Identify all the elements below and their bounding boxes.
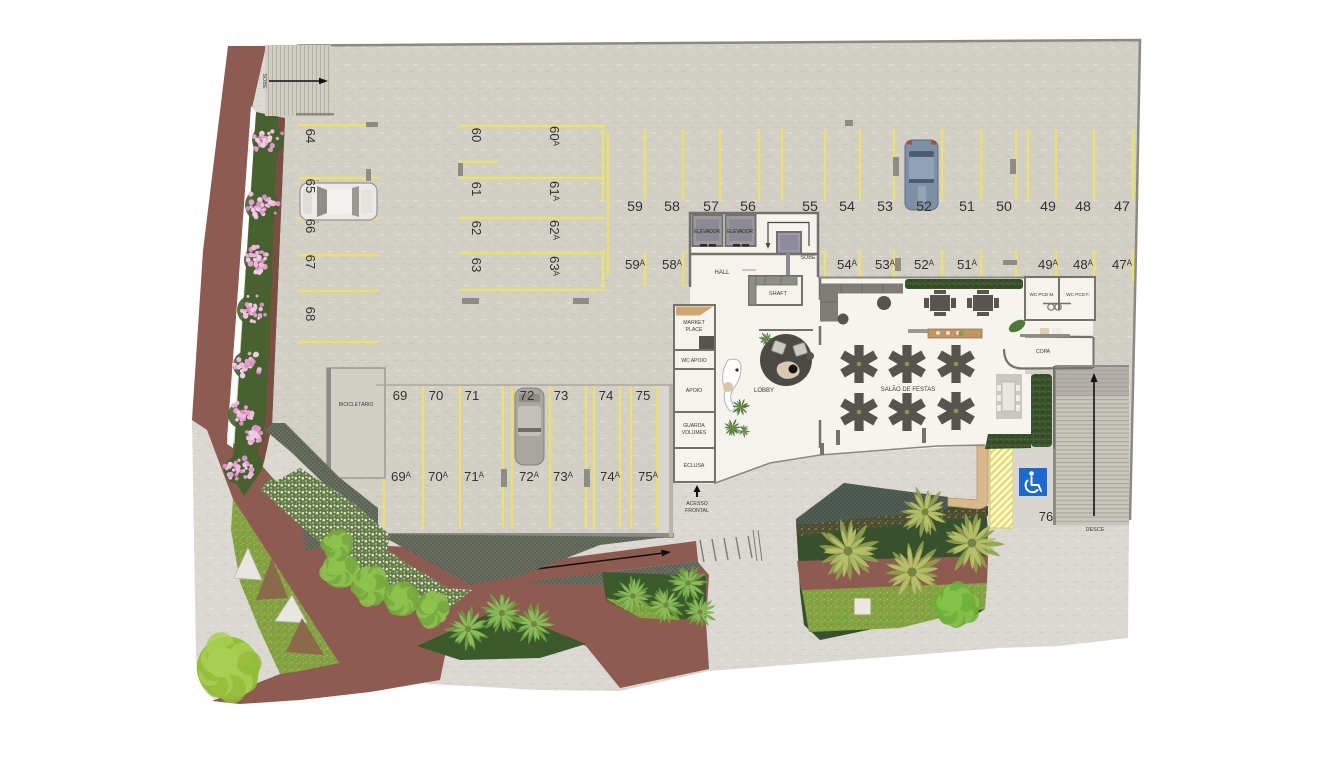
svg-text:GUARDA: GUARDA	[683, 423, 705, 429]
svg-text:56: 56	[740, 199, 756, 215]
svg-text:61: 61	[469, 182, 484, 197]
svg-text:67: 67	[303, 255, 318, 270]
svg-text:MARKET: MARKET	[683, 320, 705, 326]
svg-text:WC APOIO: WC APOIO	[681, 358, 706, 364]
svg-text:WC PCD F.: WC PCD F.	[1066, 292, 1089, 297]
svg-text:75: 75	[636, 388, 651, 403]
svg-text:51: 51	[959, 199, 975, 215]
svg-text:DESCE: DESCE	[1086, 527, 1105, 533]
svg-text:HALL: HALL	[714, 270, 730, 276]
svg-text:66: 66	[303, 219, 318, 234]
svg-text:SOBE: SOBE	[261, 73, 267, 89]
svg-text:49: 49	[1040, 199, 1056, 215]
svg-text:SHAFT: SHAFT	[769, 291, 788, 297]
svg-text:73: 73	[554, 388, 569, 403]
svg-text:ACESSO: ACESSO	[686, 501, 708, 507]
svg-text:76: 76	[1039, 509, 1053, 524]
svg-text:47: 47	[1114, 199, 1130, 215]
svg-text:APOIO: APOIO	[686, 388, 702, 394]
svg-text:SOBE: SOBE	[800, 255, 816, 261]
svg-text:FRONTAL: FRONTAL	[685, 508, 709, 514]
svg-text:59: 59	[627, 199, 643, 215]
svg-text:VOLUMES: VOLUMES	[682, 430, 707, 436]
svg-text:48: 48	[1075, 199, 1091, 215]
svg-text:70: 70	[429, 388, 444, 403]
svg-text:BICICLETÁRIO: BICICLETÁRIO	[339, 401, 374, 408]
svg-text:54: 54	[839, 199, 855, 215]
svg-text:SALÃO DE FESTAS: SALÃO DE FESTAS	[881, 386, 936, 393]
svg-text:74: 74	[599, 388, 614, 403]
svg-text:64: 64	[303, 129, 318, 144]
svg-text:ELEVADOR: ELEVADOR	[694, 229, 720, 235]
svg-text:PLACE: PLACE	[685, 327, 703, 333]
svg-text:58: 58	[664, 199, 680, 215]
svg-text:71: 71	[465, 388, 480, 403]
svg-text:57: 57	[703, 199, 719, 215]
svg-text:63: 63	[469, 258, 484, 273]
svg-text:50: 50	[996, 199, 1012, 215]
svg-text:72: 72	[520, 388, 535, 403]
svg-text:52: 52	[916, 199, 932, 215]
svg-text:WC PCD M.: WC PCD M.	[1029, 292, 1054, 297]
svg-text:55: 55	[802, 199, 818, 215]
svg-text:60: 60	[469, 128, 484, 143]
svg-text:ECLUSA: ECLUSA	[684, 463, 705, 469]
svg-text:ELEVADOR: ELEVADOR	[727, 229, 753, 235]
svg-text:53: 53	[877, 199, 893, 215]
svg-text:LOBBY: LOBBY	[754, 388, 774, 394]
svg-text:COPA: COPA	[1036, 349, 1051, 355]
svg-text:68: 68	[303, 307, 318, 322]
svg-text:62: 62	[469, 221, 484, 236]
svg-text:65: 65	[303, 179, 318, 194]
svg-text:69: 69	[393, 388, 408, 403]
